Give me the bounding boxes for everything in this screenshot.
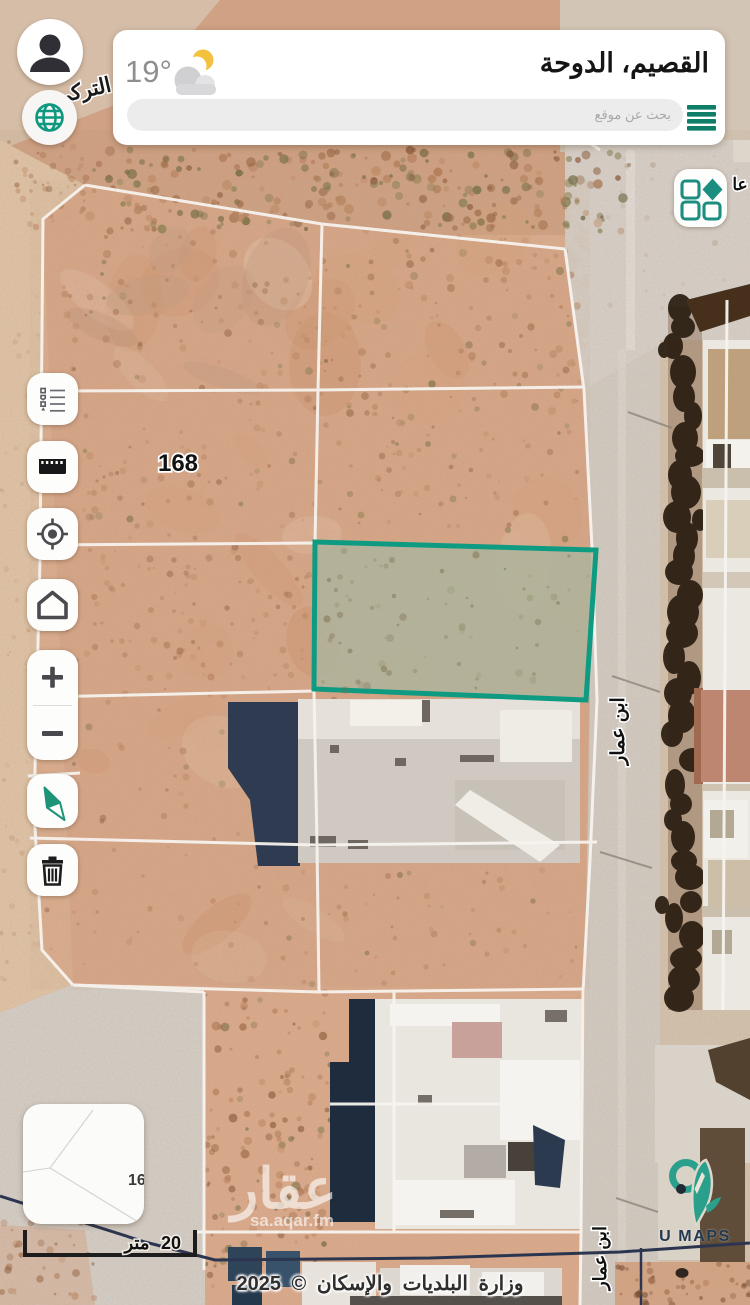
svg-text:168: 168	[158, 450, 198, 477]
svg-text:ابن عمار: ابن عمار	[590, 1226, 611, 1292]
svg-text:متر: متر	[122, 1233, 149, 1254]
svg-text:16: 16	[128, 1172, 144, 1189]
svg-text:ابن عمار: ابن عمار	[608, 697, 629, 767]
svg-text:عا: عا	[732, 175, 747, 194]
svg-text:20: 20	[161, 1233, 181, 1253]
svg-text:sa.aqar.fm: sa.aqar.fm	[250, 1211, 334, 1230]
